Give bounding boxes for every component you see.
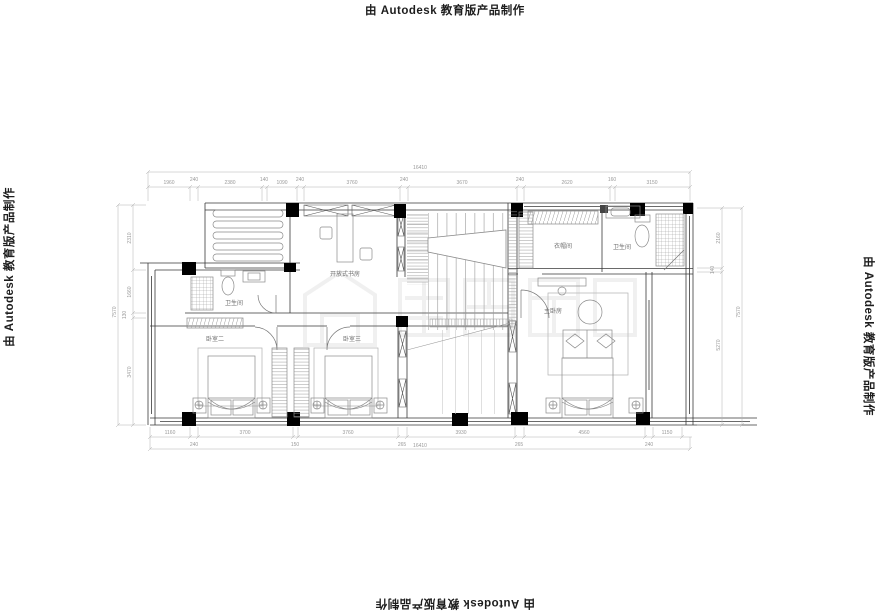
svg-text:140: 140 [260,177,269,183]
svg-text:7570: 7570 [736,306,742,317]
svg-text:150: 150 [291,442,300,448]
room-label-master: 主卧房 [544,307,562,315]
study-desk-icon [320,214,372,262]
room-label-bath-right: 卫生间 [613,243,631,251]
floor-plan: 开放式书房 卫生间 衣帽间 卫生间 主卧房 卧室二 卧室三 [0,0,878,616]
svg-text:3670: 3670 [456,180,467,186]
svg-text:3760: 3760 [346,180,357,186]
svg-text:240: 240 [190,177,199,183]
svg-text:2310: 2310 [127,232,133,243]
svg-text:265: 265 [515,442,524,448]
autodesk-watermark-right: 由 Autodesk 教育版产品制作 [861,231,877,441]
room-label-bath-left: 卫生间 [225,299,243,307]
cad-drawing-canvas: 由 Autodesk 教育版产品制作 由 Autodesk 教育版产品制作 由 … [0,0,878,616]
svg-text:7570: 7570 [112,306,118,317]
autodesk-watermark-bottom: 由 Autodesk 教育版产品制作 [385,596,535,612]
svg-text:16410: 16410 [413,165,427,171]
svg-text:1960: 1960 [163,180,174,186]
svg-text:240: 240 [645,442,654,448]
room-label-study: 开放式书房 [330,270,360,278]
bedroom2-furniture-icon [187,318,277,418]
svg-text:1150: 1150 [662,430,673,436]
louver-slats-icon [213,210,283,261]
svg-text:2620: 2620 [561,180,572,186]
svg-text:160: 160 [608,177,617,183]
autodesk-watermark-top: 由 Autodesk 教育版产品制作 [365,2,515,18]
svg-text:5270: 5270 [716,339,722,350]
svg-text:240: 240 [190,442,199,448]
room-label-bedroom2: 卧室二 [206,335,224,343]
svg-text:240: 240 [296,177,305,183]
svg-text:3930: 3930 [455,430,466,436]
svg-text:3470: 3470 [127,366,133,377]
svg-text:3760: 3760 [342,430,353,436]
room-label-bedroom3: 卧室三 [343,335,361,343]
autodesk-watermark-left: 由 Autodesk 教育版产品制作 [1,162,17,372]
svg-text:240: 240 [516,177,525,183]
wardrobe-divider-icon [272,348,309,417]
svg-text:140: 140 [710,266,716,275]
svg-text:265: 265 [398,442,407,448]
svg-text:130: 130 [122,311,128,320]
svg-text:1090: 1090 [276,180,287,186]
svg-text:3150: 3150 [646,180,657,186]
svg-text:16410: 16410 [413,443,427,449]
svg-text:1160: 1160 [165,430,176,436]
svg-text:2380: 2380 [224,180,235,186]
svg-text:2160: 2160 [716,232,722,243]
master-bedroom-furniture-icon [521,290,643,418]
room-label-cloakroom: 衣帽间 [554,242,572,250]
svg-text:240: 240 [400,177,409,183]
svg-text:3700: 3700 [239,430,250,436]
svg-text:4560: 4560 [578,430,589,436]
svg-text:1660: 1660 [127,286,133,297]
